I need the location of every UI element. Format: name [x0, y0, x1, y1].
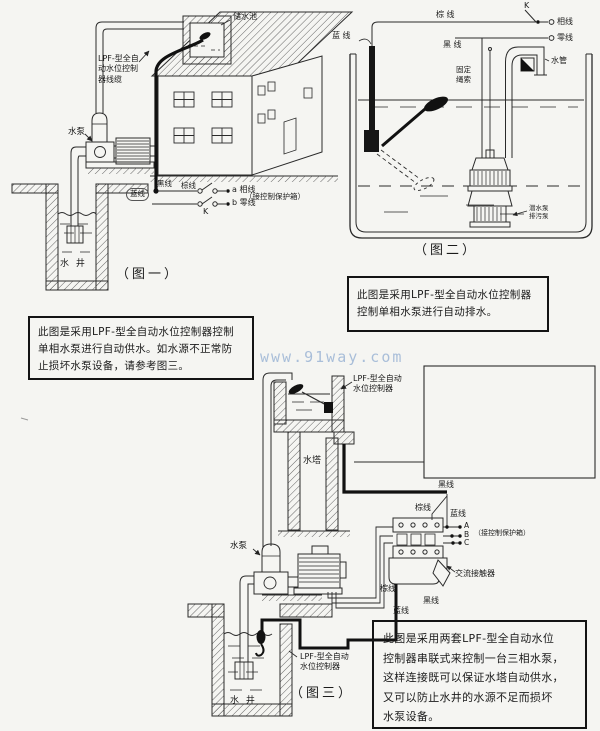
fig3-well-label: 水 井	[230, 696, 257, 708]
scanned-page: 储水池 LPF-型全自 动水位控制 器线缆 水泵 水 井 黑线 棕线 蓝线 a …	[0, 0, 600, 731]
note-line: 这样连接既可以保证水塔自动供水，	[383, 668, 576, 688]
fig3-control-box-label: （接控制保护箱）	[474, 529, 530, 538]
fig3-caption: （图三）	[290, 686, 354, 703]
fig3-terminal-c-label: C	[464, 538, 469, 548]
fig1-blue-wire-label: 蓝线	[126, 188, 149, 201]
fig1-brown-wire-label: 棕线	[181, 181, 196, 191]
fig2-caption: （图二）	[414, 243, 478, 260]
fig3-blue-wire-bottom-label: 蓝线	[393, 606, 409, 616]
fig3-black-wire-bottom-label: 黑线	[423, 596, 439, 606]
fig1-pump-label: 水泵	[68, 127, 85, 138]
fig1-switch-label: K	[203, 207, 208, 217]
fig2-rope-label: 固定 绳索	[456, 65, 471, 85]
fig2-blue-wire-label: 蓝 线	[332, 31, 351, 41]
fig1-controller-cable-label: LPF-型全自 动水位控制 器线缆	[98, 54, 152, 85]
fig3-blue-wire-top-label: 蓝线	[450, 509, 466, 519]
fig3-brown-wire-top-label: 棕线	[415, 503, 431, 513]
fig1-caption: （图一）	[116, 267, 180, 284]
fig2-brown-wire-label: 棕 线	[436, 10, 455, 20]
note-line: 此图是采用LPF-型全自动水位控制器控制	[38, 324, 244, 341]
watermark: www.91way.com	[260, 348, 403, 366]
note-line: 又可以防止水井的水源不足而损坏	[383, 688, 576, 708]
note-line: 此图是采用两套LPF-型全自动水位	[383, 629, 576, 649]
fig1-well-label: 水 井	[60, 259, 87, 271]
note-line: 水泵设备。	[383, 707, 576, 727]
fig3-black-wire-top-label: 黑线	[438, 480, 454, 490]
fig1-note-box: 此图是采用LPF-型全自动水位控制器控制 单相水泵进行自动供水。如水源不正常防 …	[28, 316, 254, 380]
fig2-note-box: 此图是采用LPF-型全自动水位控制器 控制单相水泵进行自动排水。	[347, 276, 549, 332]
fig3-tower-label: 水塔	[303, 456, 321, 468]
fig3-controller-top-label: LPF-型全自动 水位控制器	[353, 374, 402, 395]
fig3-pump-label: 水泵	[230, 541, 247, 552]
fig2-drawing	[350, 10, 592, 238]
fig1-tank-label: 储水池	[233, 12, 257, 22]
fig2-black-wire-label: 黑 线	[443, 40, 462, 50]
fig3-note-box: 此图是采用两套LPF-型全自动水位 控制器串联式来控制一台三相水泵， 这样连接既…	[372, 620, 587, 729]
note-line: 控制器串联式来控制一台三相水泵，	[383, 649, 576, 669]
fig3-brown-wire-bottom-label: 棕线	[380, 584, 396, 594]
fig2-switch-label: K	[524, 1, 529, 11]
fig1-black-wire-label: 黑线	[157, 179, 172, 189]
note-line: 控制单相水泵进行自动排水。	[357, 304, 539, 321]
fig2-water-pipe-label: 水管	[551, 56, 567, 66]
note-line: 止损坏水泵设备，请参考图三。	[38, 358, 244, 375]
fig3-controller-bottom-label: LPF-型全自动 水位控制器	[300, 652, 349, 673]
note-line: 单相水泵进行自动供水。如水源不正常防	[38, 341, 244, 358]
fig1-control-box-label: （接控制保护箱）	[245, 192, 305, 202]
fig3-contactor-label: 交流接触器	[455, 569, 495, 579]
fig1-drawing	[12, 12, 352, 290]
fig2-phase-wire-label: 相线	[557, 17, 573, 27]
fig2-submersible-pump-label: 潜水泵 排污泵	[529, 204, 549, 221]
note-line: 此图是采用LPF-型全自动水位控制器	[357, 287, 539, 304]
fig2-neutral-wire-label: 零线	[557, 33, 573, 43]
